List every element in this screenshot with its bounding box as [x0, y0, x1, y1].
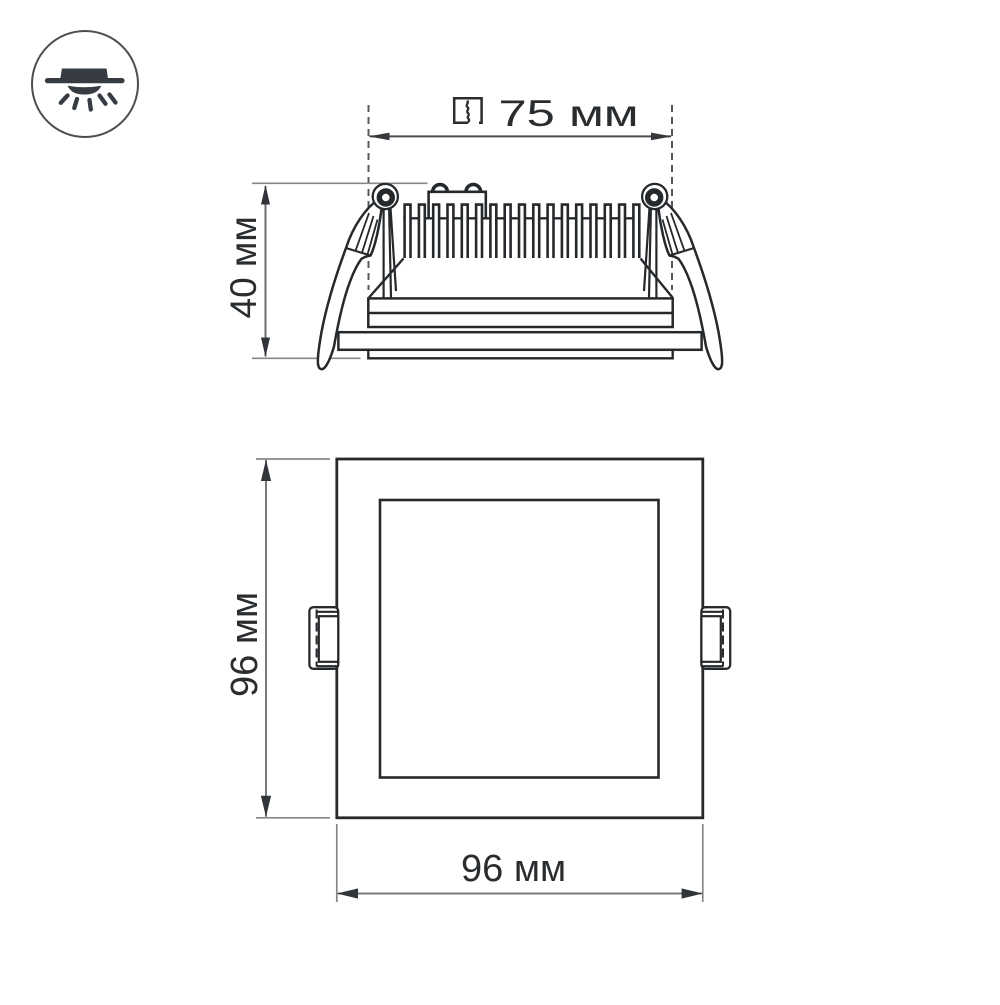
svg-text:75 мм: 75 мм	[499, 93, 639, 134]
svg-text:96 мм: 96 мм	[224, 592, 266, 697]
svg-text:40 мм: 40 мм	[223, 216, 264, 318]
svg-text:96 мм: 96 мм	[461, 848, 566, 890]
